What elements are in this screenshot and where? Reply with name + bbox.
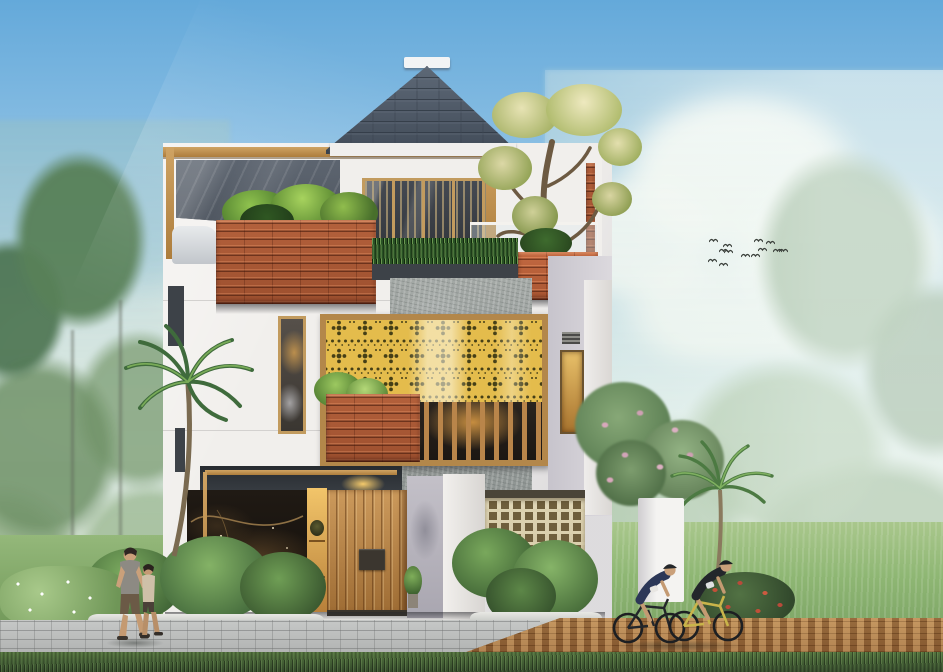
bird-icon — [779, 238, 788, 244]
frangipani-foliage — [478, 146, 532, 190]
terrace-planter-box — [216, 220, 376, 304]
potted-plant — [404, 566, 422, 596]
terrace-lounge-chair — [172, 226, 218, 264]
exterior-rendering-scene — [0, 0, 943, 672]
bird-icon — [766, 230, 775, 236]
narrow-window-left — [278, 316, 306, 434]
shelf-bonsai — [310, 520, 324, 536]
bird-icon — [724, 239, 733, 245]
lattice-top-shadow — [485, 490, 585, 498]
plant-pot — [408, 594, 418, 608]
bird-icon — [741, 243, 750, 249]
mid-planter-box — [326, 394, 420, 462]
planter-shadow — [216, 304, 376, 314]
bird-icon — [751, 243, 760, 249]
frangipani-foliage — [598, 128, 642, 166]
shelf-line — [309, 540, 325, 542]
frangipani-foliage — [546, 84, 622, 136]
bird-icon — [754, 228, 763, 234]
cyclists — [606, 542, 752, 652]
foreground-grass — [0, 652, 943, 672]
bird-icon — [708, 248, 717, 254]
leaf-shadow — [410, 500, 440, 560]
bird-icon — [719, 252, 728, 258]
frangipani-foliage — [592, 182, 632, 216]
pedestrians — [104, 542, 168, 646]
bird-icon — [709, 228, 718, 234]
timber-slat-entry-door — [327, 490, 407, 614]
vent-grille — [562, 332, 580, 344]
foreground-palm — [118, 318, 268, 568]
door-plate — [359, 549, 385, 570]
